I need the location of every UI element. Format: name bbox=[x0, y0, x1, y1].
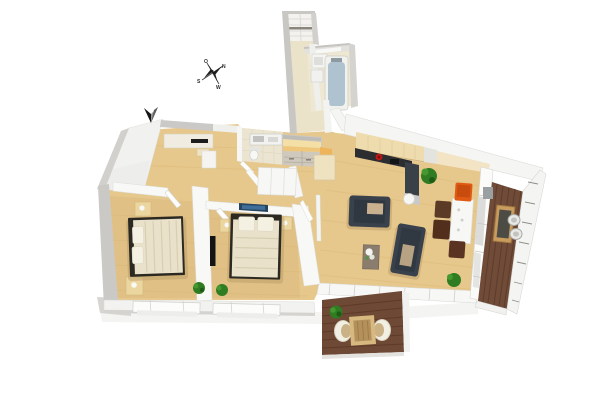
svg-text:N: N bbox=[222, 64, 226, 70]
svg-text:O: O bbox=[204, 59, 208, 65]
svg-text:W: W bbox=[216, 85, 221, 91]
